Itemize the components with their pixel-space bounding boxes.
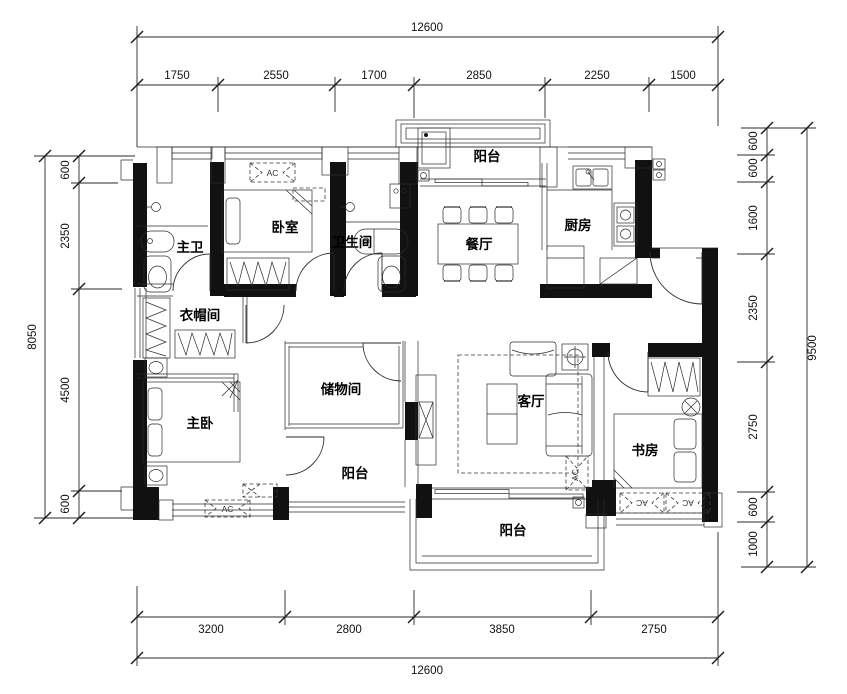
room-label-bathroom: 卫生间 xyxy=(332,234,373,250)
living-area-outline xyxy=(458,355,578,473)
ac-label-bedroom: AC xyxy=(267,168,279,178)
dim-top-seg-2: 1700 xyxy=(361,70,387,82)
floorplan-page: 12600 1750 2550 1700 2850 2250 1500 3200… xyxy=(0,0,847,694)
door-balcony-mid xyxy=(286,437,324,475)
door-master-bath xyxy=(173,254,210,291)
furniture xyxy=(141,128,702,508)
dim-top-seg-4: 2250 xyxy=(584,70,610,82)
floorplan-drawing: 12600 1750 2550 1700 2850 2250 1500 3200… xyxy=(0,0,847,694)
door-study xyxy=(608,352,648,392)
ac-label-living: AC xyxy=(570,469,580,481)
dim-right-seg-5: 600 xyxy=(748,497,760,516)
door-storage xyxy=(363,343,401,381)
ac-label-study-2: AC xyxy=(682,498,694,508)
dim-bottom-seg-2: 3850 xyxy=(489,624,515,636)
room-label-balcony-mid: 阳台 xyxy=(342,465,369,481)
ac-living: AC xyxy=(566,456,588,490)
dim-bottom-seg-3: 2750 xyxy=(641,624,667,636)
door-entry xyxy=(650,252,702,304)
dim-right-seg-0: 600 xyxy=(748,131,760,150)
dim-bottom: 3200 2800 3850 2750 12600 xyxy=(131,532,724,677)
bedroom-bed xyxy=(222,190,312,252)
washing-machine xyxy=(418,128,450,168)
dim-left-seg-1: 2350 xyxy=(60,223,72,249)
room-label-dining: 餐厅 xyxy=(465,236,493,252)
room-label-kitchen: 厨房 xyxy=(565,217,592,233)
dim-top-seg-0: 1750 xyxy=(164,70,190,82)
cloakroom-wardrobes xyxy=(143,298,235,358)
ac-label-study-1: AC xyxy=(636,498,648,508)
dim-left-total: 8050 xyxy=(27,324,39,350)
room-label-master-bath: 主卫 xyxy=(177,239,204,255)
dim-left-seg-2: 4500 xyxy=(60,377,72,403)
door-bathroom xyxy=(344,253,382,291)
dim-left: 8050 600 2350 4500 600 xyxy=(27,150,135,524)
gas-meter xyxy=(653,159,665,180)
dim-bottom-seg-1: 2800 xyxy=(336,624,362,636)
ac-bedroom: AC xyxy=(250,163,295,182)
sofa xyxy=(546,374,592,456)
dim-right: 9500 600 600 1600 2350 2750 600 1000 xyxy=(737,122,819,573)
armchair xyxy=(510,342,556,376)
utility-box xyxy=(562,344,588,370)
room-label-cloakroom: 衣帽间 xyxy=(180,307,221,323)
dim-top-seg-5: 1500 xyxy=(670,70,696,82)
nightstand-bottom xyxy=(145,466,167,485)
dim-right-total: 9500 xyxy=(807,335,819,361)
ac-study-1: AC xyxy=(620,493,664,513)
dim-right-seg-1: 600 xyxy=(748,158,760,177)
room-label-balcony-bottom: 阳台 xyxy=(500,522,527,538)
dim-top-seg-3: 2850 xyxy=(466,70,492,82)
room-label-study: 书房 xyxy=(632,442,659,458)
dim-right-seg-6: 1000 xyxy=(748,531,760,557)
dim-left-seg-3: 600 xyxy=(60,494,72,513)
room-label-master-bedroom: 主卧 xyxy=(187,415,214,431)
dim-bottom-seg-0: 3200 xyxy=(198,624,224,636)
dim-right-seg-4: 2750 xyxy=(748,414,760,440)
living-room-set xyxy=(416,342,592,473)
tv-cabinet xyxy=(416,375,436,465)
ac-master-bedroom: AC xyxy=(205,484,277,517)
door-bedroom xyxy=(296,253,334,291)
kitchen-fixtures xyxy=(547,166,637,288)
dim-top-seg-1: 2550 xyxy=(263,70,289,82)
study-furniture xyxy=(614,358,702,488)
dim-top-total: 12600 xyxy=(411,22,443,34)
door-master-suite xyxy=(246,305,284,343)
dim-left-seg-0: 600 xyxy=(60,160,72,179)
room-label-balcony-top: 阳台 xyxy=(474,148,501,164)
dim-right-seg-2: 1600 xyxy=(748,205,760,231)
room-label-living: 客厅 xyxy=(517,393,546,409)
dim-bottom-total: 12600 xyxy=(411,665,443,677)
walls xyxy=(121,147,722,528)
dim-right-seg-3: 2350 xyxy=(748,295,760,321)
room-label-storage: 储物间 xyxy=(320,381,362,397)
room-label-bedroom: 卧室 xyxy=(272,219,299,235)
ac-label-master: AC xyxy=(222,504,234,514)
